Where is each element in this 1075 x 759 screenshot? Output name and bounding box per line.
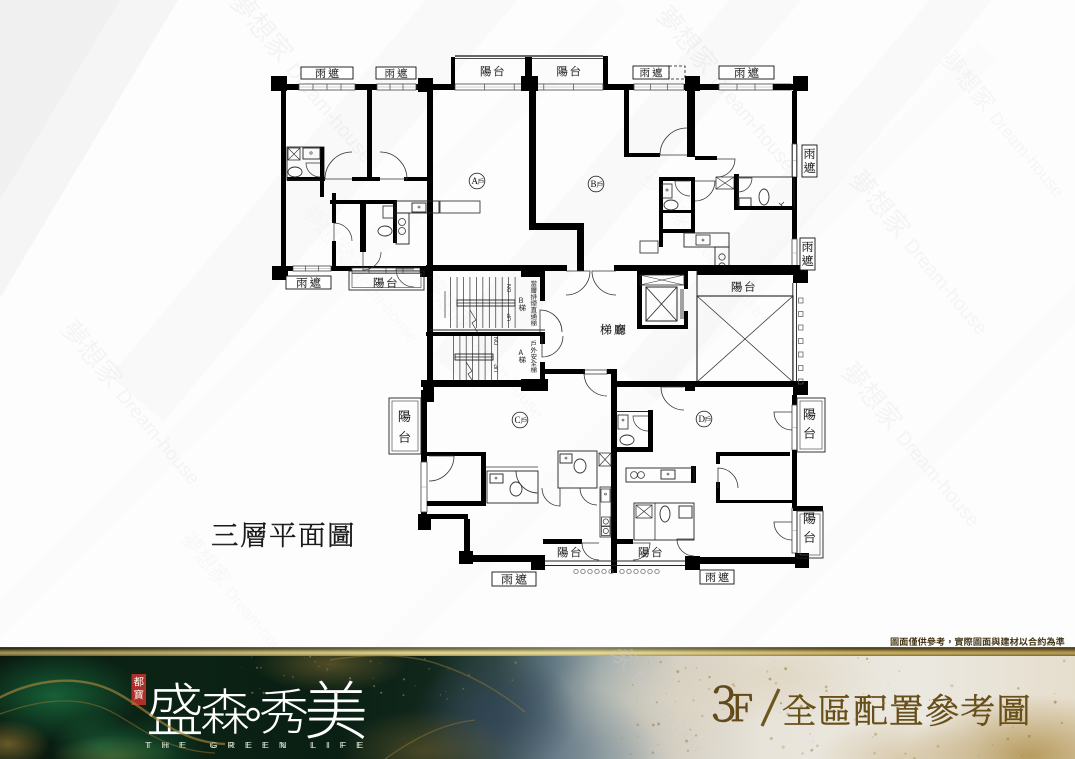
svg-text:DN: DN [494, 337, 500, 345]
svg-text:C: C [515, 415, 521, 425]
svg-text:A: A [472, 176, 479, 186]
svg-text:Dream-house: Dream-house [986, 108, 1069, 201]
svg-text:THE GREEN LIFE: THE GREEN LIFE [145, 740, 373, 750]
svg-text:Dream-house: Dream-house [221, 585, 296, 649]
svg-text:DN: DN [507, 284, 513, 292]
svg-text:UP: UP [494, 364, 500, 372]
svg-text:B: B [591, 179, 597, 189]
svg-text:D: D [699, 414, 706, 424]
svg-text:UP: UP [507, 313, 513, 321]
svg-text:Dream-hou: Dream-hou [626, 667, 707, 758]
svg-text:Dream-house: Dream-house [899, 235, 992, 340]
